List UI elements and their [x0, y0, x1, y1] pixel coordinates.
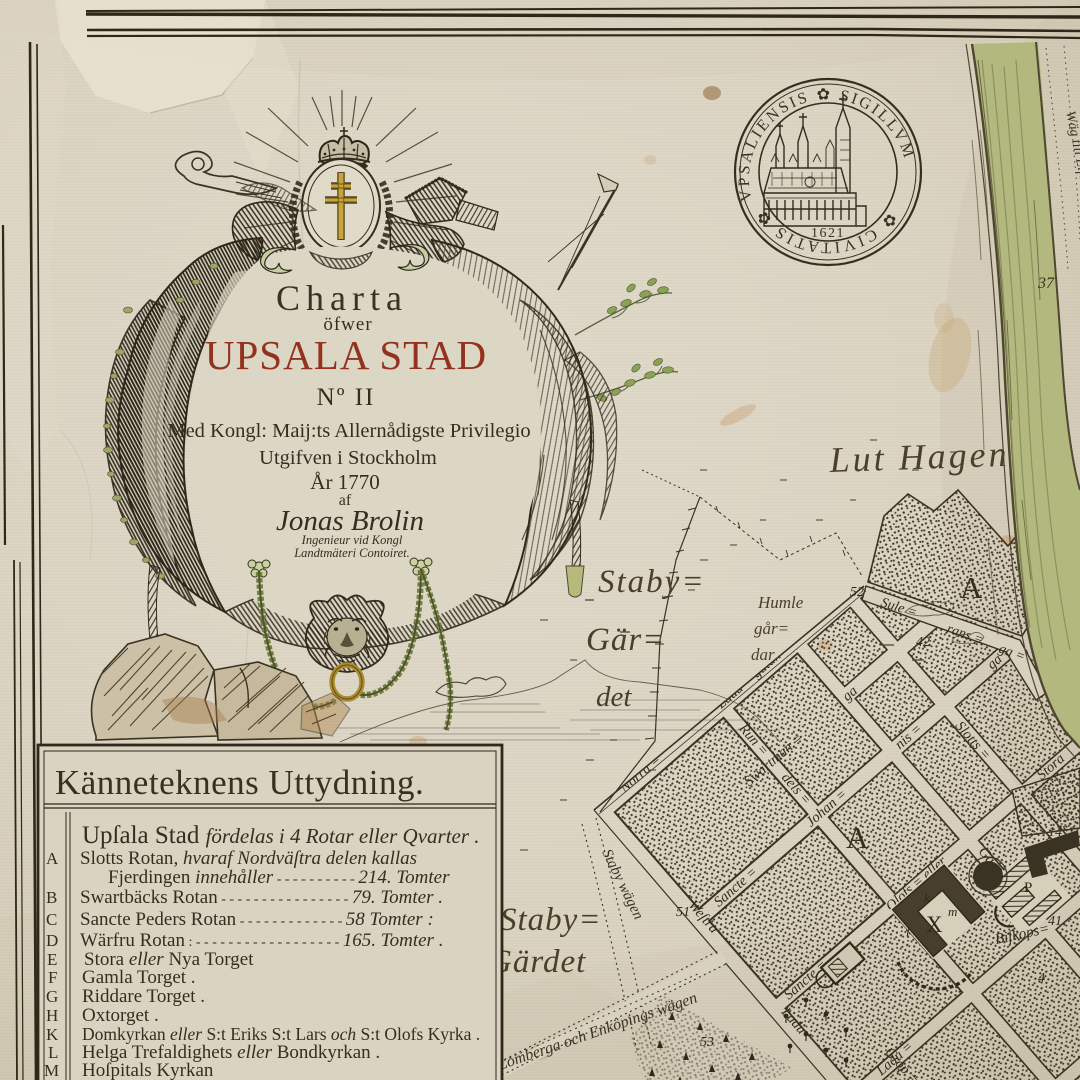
svg-text:G: G	[46, 987, 58, 1006]
svg-text:X: X	[926, 912, 943, 937]
svg-text:E: E	[47, 950, 57, 969]
svg-text:Slotts Rotan, hvaraf Nordväſtr: Slotts Rotan, hvaraf Nordväſtra delen ka…	[80, 848, 417, 869]
svg-text:Nº II: Nº II	[317, 384, 376, 411]
svg-text:52: 52	[850, 585, 864, 600]
svg-text:UPSALA STAD: UPSALA STAD	[205, 332, 487, 378]
svg-text:51: 51	[676, 905, 690, 920]
svg-text:4: 4	[1038, 971, 1045, 986]
svg-text:dar: dar	[751, 645, 775, 664]
svg-text:Lut Hagen: Lut Hagen	[828, 434, 1010, 480]
svg-text:C: C	[46, 910, 57, 929]
svg-text:Upſala Stad fördelas i 4 Rotar: Upſala Stad fördelas i 4 Rotar eller Qva…	[82, 822, 480, 849]
svg-text:Känneteknens Uttydning.: Känneteknens Uttydning.	[55, 763, 424, 802]
svg-text:l: l	[906, 924, 910, 939]
svg-text:Med Kongl: Maij:ts Allernådigs: Med Kongl: Maij:ts Allernådigste Privile…	[167, 420, 530, 442]
svg-text:A: A	[846, 820, 869, 855]
svg-text:37: 37	[1037, 275, 1055, 292]
svg-text:B: B	[46, 888, 57, 907]
svg-text:Staby=: Staby=	[500, 902, 602, 938]
svg-text:går=: går=	[754, 619, 789, 638]
svg-text:P: P	[1024, 880, 1032, 896]
svg-text:Landtmäteri Contoiret.: Landtmäteri Contoiret.	[293, 546, 410, 560]
svg-text:Humle: Humle	[757, 593, 804, 612]
svg-text:D: D	[46, 931, 58, 950]
svg-text:År 1770: År 1770	[310, 470, 379, 494]
svg-text:Gamla Torget .: Gamla Torget .	[82, 967, 196, 988]
svg-text:Riddare Torget .: Riddare Torget .	[82, 986, 205, 1007]
svg-text:Charta: Charta	[276, 278, 408, 318]
svg-text:L: L	[48, 1043, 58, 1062]
svg-text:Oxtorget .: Oxtorget .	[82, 1005, 159, 1026]
svg-text:Ingenieur vid Kongl: Ingenieur vid Kongl	[301, 533, 403, 547]
svg-text:A: A	[46, 849, 59, 868]
svg-text:Staby=: Staby=	[598, 564, 706, 600]
svg-text:M: M	[44, 1061, 59, 1080]
svg-text:1621: 1621	[811, 226, 845, 241]
svg-text:Utgifven i Stockholm: Utgifven i Stockholm	[259, 447, 437, 469]
svg-text:Hoſpitals Kyrkan: Hoſpitals Kyrkan	[82, 1060, 214, 1080]
svg-text:41: 41	[1048, 914, 1062, 929]
svg-text:k: k	[924, 890, 930, 905]
svg-text:F: F	[48, 968, 57, 987]
svg-text:42: 42	[916, 635, 930, 650]
svg-text:det: det	[596, 681, 632, 713]
svg-text:A: A	[960, 570, 983, 605]
svg-text:H: H	[46, 1006, 58, 1025]
svg-text:K: K	[46, 1025, 59, 1044]
svg-text:Domkyrkan eller S:t Eriks S:t: Domkyrkan eller S:t Eriks S:t Lars och S…	[82, 1024, 480, 1044]
svg-text:m: m	[948, 904, 957, 919]
svg-text:Gär=: Gär=	[586, 622, 665, 658]
